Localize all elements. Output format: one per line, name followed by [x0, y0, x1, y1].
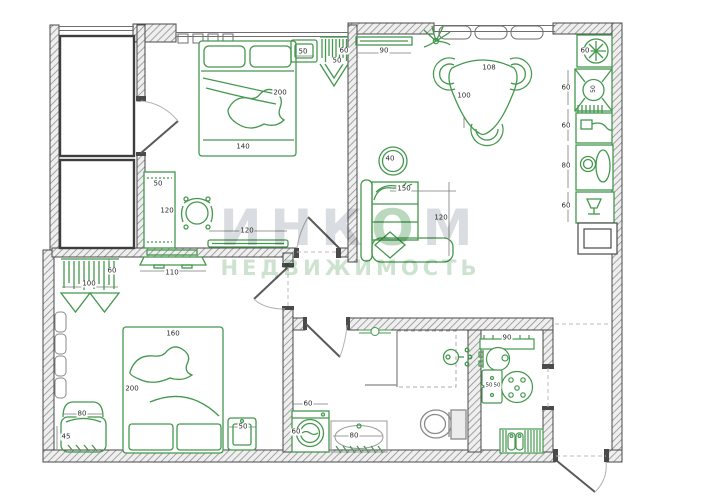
- wall-shelf: [356, 37, 412, 45]
- desk: [144, 172, 175, 248]
- side-table: [379, 147, 407, 175]
- kitchen-sink: [576, 145, 613, 190]
- floor-plan-drawing: [0, 0, 701, 496]
- armchair: [61, 402, 106, 452]
- nightstand: [228, 418, 256, 450]
- floor-plan: 1402005060509010810060506060806040150120…: [0, 0, 701, 496]
- bed-bedroom2: [123, 312, 223, 453]
- cabinets-50: [482, 370, 502, 403]
- closet-bedroom1: [320, 37, 348, 86]
- vent-shaft: [578, 223, 617, 254]
- toilet: [421, 410, 467, 439]
- shower: [365, 331, 472, 387]
- sofa: [361, 180, 453, 262]
- console-shelf: [208, 240, 288, 247]
- stove: [575, 69, 612, 111]
- office-chair: [182, 197, 213, 229]
- bed-bedroom1: [199, 41, 296, 156]
- balcony-closets: [60, 36, 134, 248]
- shelf-90: [480, 335, 534, 349]
- washing-machine: [292, 411, 329, 452]
- wardrobe-bedroom2: [61, 259, 119, 312]
- kitchen-radiator: [578, 105, 602, 113]
- dining-table: [449, 60, 517, 135]
- round-table-dots: [502, 372, 533, 403]
- bathroom-vanity: [331, 421, 387, 453]
- laundry-room-fixtures: [479, 335, 543, 453]
- radiator: [55, 312, 66, 398]
- dishwasher: [576, 192, 614, 223]
- round-basin: [479, 348, 510, 371]
- kitchen-counter: [576, 113, 612, 143]
- fridge: [577, 35, 612, 67]
- entry-wardrobe: [500, 429, 543, 453]
